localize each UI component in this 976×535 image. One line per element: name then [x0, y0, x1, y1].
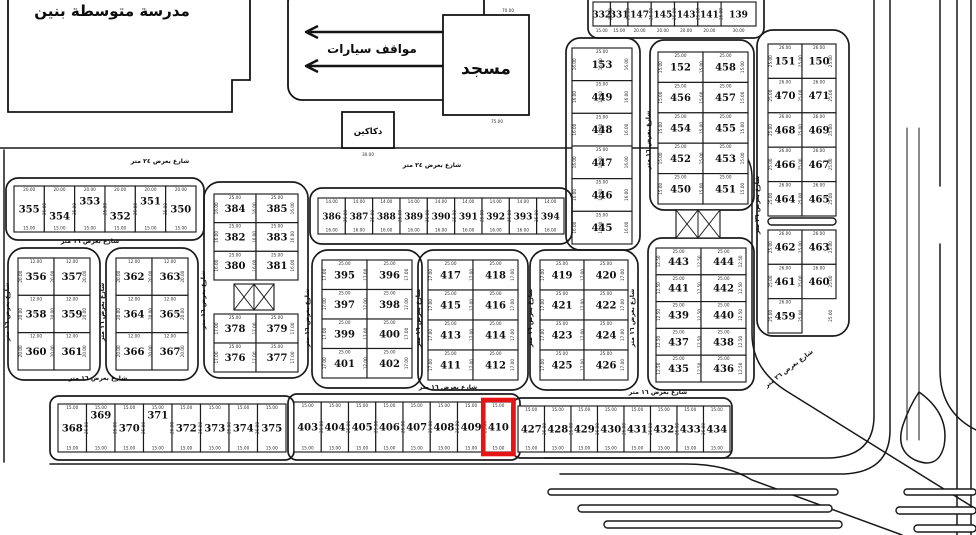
- plot-number-442: 442: [713, 284, 734, 295]
- plot-number-390: 390: [432, 213, 451, 223]
- dim-label: 15.00: [492, 446, 504, 451]
- dim-label: 25.00: [596, 180, 608, 185]
- dim-label: 26.00: [813, 265, 825, 270]
- dim-label: 15.00: [438, 403, 450, 408]
- dim-label: 25.00: [798, 89, 803, 101]
- dim-label: 20.00: [50, 308, 55, 320]
- dim-label: 12.50: [697, 309, 702, 321]
- shops-label: دكاكين: [354, 127, 383, 137]
- plot-number-439: 439: [668, 311, 689, 322]
- plot-number-444: 444: [713, 257, 734, 268]
- dim-label: 25.00: [701, 423, 706, 435]
- dim-label: 16.00: [408, 228, 420, 233]
- dim-label: 16.00: [572, 156, 577, 168]
- landmark-mosque: مسجد 70.00 75.00: [443, 8, 529, 124]
- school-label: مدرسة متوسطة بنين: [34, 2, 190, 20]
- dim-label: 17.00: [428, 269, 433, 281]
- plot-number-420: 420: [596, 271, 617, 282]
- dim-label: 16.00: [252, 231, 257, 243]
- dim-label: 25.00: [720, 83, 732, 88]
- street-label: شارع بعرض ٢٦ متر: [754, 176, 761, 235]
- dim-label: 15.00: [123, 446, 135, 451]
- dim-label: 25.00: [113, 422, 118, 434]
- plot-number-415: 415: [440, 301, 461, 312]
- street-label: شارع بعرض ١٦ متر: [418, 384, 477, 391]
- dim-label: 16.00: [517, 228, 529, 233]
- dim-label: 25.00: [720, 53, 732, 58]
- dim-label: 25.00: [170, 422, 175, 434]
- dim-label: 20.00: [54, 187, 66, 192]
- dim-label: 25.00: [455, 421, 460, 433]
- plot-number-383: 383: [267, 233, 288, 244]
- dim-label: 20.00: [82, 308, 87, 320]
- plot-number-143: 143: [677, 11, 696, 21]
- dim-label: 20.00: [657, 28, 669, 33]
- dim-label: 25.00: [828, 158, 833, 170]
- dim-label: 25.00: [229, 315, 241, 320]
- dim-label: 25.00: [798, 310, 803, 322]
- dim-label: 25.00: [445, 291, 457, 296]
- plot-number-452: 452: [670, 154, 691, 165]
- dim-label: 17.00: [252, 322, 257, 334]
- dim-label: 12.00: [164, 296, 176, 301]
- dim-label: 16.00: [290, 202, 295, 214]
- dim-label: 17.00: [510, 329, 515, 341]
- plot-number-389: 389: [404, 213, 423, 223]
- dim-label: 25.00: [600, 321, 612, 326]
- dim-label: 25.00: [452, 210, 457, 222]
- dim-label: 15.00: [658, 152, 663, 164]
- dim-label: 25.00: [343, 210, 348, 222]
- plot-number-461: 461: [775, 277, 796, 288]
- plot-number-369: 369: [90, 411, 111, 422]
- dim-label: 26.00: [779, 183, 791, 188]
- dim-label: 16.00: [598, 123, 603, 135]
- lane-bar-3: [604, 521, 842, 528]
- street-label: شارع بعرض ١٦ متر: [628, 389, 687, 396]
- plot-number-357: 357: [62, 272, 83, 283]
- plot-number-358: 358: [26, 310, 47, 321]
- dim-label: 12.00: [128, 259, 140, 264]
- street-label: شارع بعرض ١٦ متر: [645, 111, 652, 170]
- dim-label: 17.00: [404, 327, 409, 339]
- dim-label: 15.00: [356, 446, 368, 451]
- dim-label: 25.00: [445, 261, 457, 266]
- plot-number-466: 466: [775, 160, 796, 171]
- dim-label: 25.00: [163, 203, 168, 215]
- plot-number-399: 399: [334, 329, 355, 340]
- plot-number-456: 456: [670, 93, 691, 104]
- dim-label: 15.00: [578, 407, 590, 412]
- dim-label: 15.00: [525, 407, 537, 412]
- plot-number-395: 395: [334, 270, 355, 281]
- dim-label: 17.00: [214, 322, 219, 334]
- dim-label: 25.00: [719, 8, 724, 20]
- lane-bar-4: [904, 489, 976, 495]
- lane-bar-6: [914, 525, 976, 532]
- plot-number-394: 394: [541, 213, 560, 223]
- dim-label: 15.00: [658, 91, 663, 103]
- dim-label: 15.00: [699, 152, 704, 164]
- dim-label: 12.00: [128, 334, 140, 339]
- dim-label: 17.00: [540, 299, 545, 311]
- dim-label: 26.00: [779, 114, 791, 119]
- plot-number-424: 424: [596, 331, 617, 342]
- dim-label: 25.00: [271, 344, 283, 349]
- plot-number-459: 459: [775, 311, 796, 322]
- dim-label: 17.00: [404, 357, 409, 369]
- dim-label: 25.00: [72, 203, 77, 215]
- dim-label: 26.00: [813, 79, 825, 84]
- street-label: شارع بعرض ٢٤ متر: [402, 162, 461, 169]
- dim-label: 15.00: [740, 61, 745, 73]
- plot-number-378: 378: [225, 324, 246, 335]
- dim-label: 15.00: [658, 446, 670, 451]
- dim-label: 15.00: [552, 407, 564, 412]
- dim-label: 17.00: [322, 327, 327, 339]
- dim-label: 25.00: [828, 241, 833, 253]
- dim-label: 25.00: [675, 53, 687, 58]
- dim-label: 17.00: [540, 359, 545, 371]
- dim-label: 26.00: [813, 183, 825, 188]
- plot-number-373: 373: [204, 424, 225, 435]
- landmark-school: مدرسة متوسطة بنين: [8, 0, 250, 112]
- plot-number-426: 426: [596, 361, 617, 372]
- dim-label: 25.00: [718, 249, 730, 254]
- dim-label: 16.00: [353, 228, 365, 233]
- dim-label: 25.00: [229, 252, 241, 257]
- plot-number-364: 364: [124, 310, 145, 321]
- plot-number-416: 416: [485, 301, 506, 312]
- dim-label: 25.00: [271, 252, 283, 257]
- dim-label: 15.00: [383, 446, 395, 451]
- dim-label: 25.00: [768, 310, 773, 322]
- dim-label: 25.00: [370, 210, 375, 222]
- dim-label: 25.00: [227, 422, 232, 434]
- dim-label: 17.00: [580, 329, 585, 341]
- dim-label: 16.00: [572, 58, 577, 70]
- street-label: شارع بعرض ٢٦ متر: [763, 348, 815, 389]
- dim-label: 25.00: [384, 261, 396, 266]
- dim-label: 25.00: [596, 147, 608, 152]
- dim-label: 17.00: [428, 329, 433, 341]
- plot-number-437: 437: [668, 337, 689, 348]
- dim-label: 25.00: [625, 8, 630, 20]
- dim-label: 15.00: [492, 403, 504, 408]
- dim-label: 25.00: [133, 203, 138, 215]
- dim-label: 12.50: [656, 362, 661, 374]
- dim-label: 15.00: [329, 446, 341, 451]
- dim-label: 15.00: [699, 61, 704, 73]
- dim-label: 15.00: [578, 446, 590, 451]
- dim-label: 16.00: [380, 228, 392, 233]
- plot-number-139: 139: [729, 11, 748, 21]
- dim-label: 15.00: [740, 182, 745, 194]
- plot-number-380: 380: [225, 261, 246, 272]
- dim-label: 25.00: [569, 423, 574, 435]
- dim-label: 25.00: [480, 210, 485, 222]
- dim-label: 17.00: [290, 322, 295, 334]
- dim-label: 16.00: [290, 259, 295, 271]
- plot-number-368: 368: [62, 424, 83, 435]
- dim-label: 15.00: [302, 403, 314, 408]
- plot-number-397: 397: [334, 300, 355, 311]
- dim-label: 14.00: [353, 199, 365, 204]
- street-label: شارع بعرض ١٦ متر: [200, 271, 207, 330]
- plot-number-362: 362: [124, 272, 145, 283]
- dim-label: 15.00: [356, 403, 368, 408]
- dim-label: 16.00: [252, 259, 257, 271]
- dim-label: 20.00: [23, 187, 35, 192]
- dim-label: 16.00: [624, 91, 629, 103]
- dim-label: 26.00: [779, 265, 791, 270]
- plot-number-436: 436: [713, 364, 734, 375]
- dim-label: 15.00: [180, 405, 192, 410]
- lane-bar-2: [578, 505, 832, 512]
- dim-label: 12.00: [66, 334, 78, 339]
- plot-number-457: 457: [715, 93, 736, 104]
- dim-label: 25.00: [675, 144, 687, 149]
- dim-label: 25.00: [103, 203, 108, 215]
- plot-number-376: 376: [225, 353, 246, 364]
- street-label: شارع بعرض ١٦ متر: [527, 289, 534, 348]
- dim-label: 16.00: [624, 123, 629, 135]
- plot-number-388: 388: [377, 213, 396, 223]
- plot-number-417: 417: [440, 271, 461, 282]
- dim-label: 17.00: [620, 329, 625, 341]
- dim-label: 15.00: [658, 122, 663, 134]
- plot-number-359: 359: [62, 310, 83, 321]
- dim-label: 15.00: [180, 446, 192, 451]
- dim-label: 16.00: [624, 156, 629, 168]
- dim-label: 25.00: [595, 423, 600, 435]
- plot-number-410: 410: [488, 423, 509, 434]
- dim-label: 25.00: [339, 350, 351, 355]
- plot-number-361: 361: [62, 347, 83, 358]
- plot-number-366: 366: [124, 347, 145, 358]
- mosque-dim-bottom: 75.00: [491, 119, 503, 124]
- dim-label: 20.00: [50, 345, 55, 357]
- dim-label: 15.00: [699, 122, 704, 134]
- plot-number-406: 406: [379, 423, 400, 434]
- street-label: شارع بعرض ١٦ متر: [415, 289, 422, 348]
- dim-label: 25.00: [720, 144, 732, 149]
- dim-label: 25.00: [339, 261, 351, 266]
- dim-label: 16.00: [544, 228, 556, 233]
- plot-number-405: 405: [352, 423, 373, 434]
- dim-label: 25.00: [556, 351, 568, 356]
- dim-label: 25.00: [673, 249, 685, 254]
- plot-number-470: 470: [775, 91, 796, 102]
- dim-label: 25.00: [507, 210, 512, 222]
- dim-label: 17.00: [428, 359, 433, 371]
- dim-label: 25.00: [42, 203, 47, 215]
- dim-label: 25.00: [271, 224, 283, 229]
- dim-label: 17.00: [363, 298, 368, 310]
- plot-number-350: 350: [170, 205, 191, 216]
- plot-number-414: 414: [485, 331, 506, 342]
- dim-label: 25.00: [768, 89, 773, 101]
- dim-label: 17.00: [404, 268, 409, 280]
- dim-label: 12.50: [697, 255, 702, 267]
- plot-number-363: 363: [160, 272, 181, 283]
- plot-number-465: 465: [809, 194, 830, 205]
- plot-number-433: 433: [680, 425, 701, 436]
- plot-number-381: 381: [267, 261, 288, 272]
- dim-label: 25.00: [673, 329, 685, 334]
- dim-label: 15.00: [631, 407, 643, 412]
- dim-label: 17.00: [510, 269, 515, 281]
- plot-number-469: 469: [809, 126, 830, 137]
- plot-number-147: 147: [630, 11, 649, 21]
- plot-number-451: 451: [715, 184, 736, 195]
- dim-label: 16.00: [598, 221, 603, 233]
- dim-label: 17.00: [510, 299, 515, 311]
- dim-label: 17.00: [540, 269, 545, 281]
- plot-number-371: 371: [147, 411, 168, 422]
- subdivision-map: مدرسة متوسطة بنين مواقف سيارات مسجد 70.0…: [0, 0, 976, 535]
- plot-number-429: 429: [574, 425, 595, 436]
- dim-label: 25.00: [596, 82, 608, 87]
- plot-number-150: 150: [809, 57, 830, 68]
- dim-label: 15.00: [740, 122, 745, 134]
- plot-number-423: 423: [552, 331, 573, 342]
- dim-label: 25.00: [768, 158, 773, 170]
- dim-label: 16.00: [214, 259, 219, 271]
- dim-label: 15.00: [209, 405, 221, 410]
- dim-label: 15.00: [66, 446, 78, 451]
- dim-label: 25.00: [768, 55, 773, 67]
- dim-label: 15.00: [684, 446, 696, 451]
- dim-label: 25.00: [401, 421, 406, 433]
- dim-label: 15.00: [658, 407, 670, 412]
- plot-number-460: 460: [809, 277, 830, 288]
- plot-number-401: 401: [334, 359, 355, 370]
- dim-label: 12.00: [30, 334, 42, 339]
- dim-label: 15.00: [66, 405, 78, 410]
- dim-label: 12.50: [738, 335, 743, 347]
- dim-label: 15.00: [465, 446, 477, 451]
- dim-label: 25.00: [608, 8, 613, 20]
- dim-label: 12.50: [738, 255, 743, 267]
- dim-label: 25.00: [798, 55, 803, 67]
- dim-label: 25.00: [198, 422, 203, 434]
- dim-label: 25.00: [828, 124, 833, 136]
- dim-label: 25.00: [596, 212, 608, 217]
- dim-label: 25.00: [271, 315, 283, 320]
- shops-dim-bottom: 30.00: [362, 152, 374, 157]
- dim-label: 20.00: [180, 308, 185, 320]
- dim-label: 12.50: [738, 282, 743, 294]
- dim-label: 15.00: [525, 446, 537, 451]
- dim-label: 14.00: [490, 199, 502, 204]
- plot-number-431: 431: [627, 425, 648, 436]
- dim-label: 17.00: [580, 269, 585, 281]
- plot-number-438: 438: [713, 337, 734, 348]
- dim-label: 25.00: [600, 291, 612, 296]
- dim-label: 15.00: [383, 403, 395, 408]
- dim-label: 12.00: [164, 259, 176, 264]
- plot-number-428: 428: [547, 425, 568, 436]
- dim-label: 25.00: [596, 114, 608, 119]
- dim-label: 25.00: [828, 310, 833, 322]
- dim-label: 12.00: [66, 259, 78, 264]
- plot-number-392: 392: [486, 213, 505, 223]
- street-label: شارع بعرض ١٦ متر: [99, 283, 106, 342]
- dim-label: 20.00: [116, 345, 121, 357]
- plot-number-441: 441: [668, 284, 689, 295]
- dim-label: 26.00: [779, 148, 791, 153]
- plot-number-412: 412: [485, 361, 506, 372]
- street-label: شارع بعرض ١٦ متر: [4, 283, 11, 342]
- plot-number-141: 141: [700, 11, 719, 21]
- plot-number-385: 385: [267, 204, 288, 215]
- plot-number-418: 418: [485, 271, 506, 282]
- plot-number-411: 411: [440, 361, 461, 372]
- dim-label: 25.00: [718, 329, 730, 334]
- dim-label: 16.00: [252, 202, 257, 214]
- dim-label: 15.00: [711, 407, 723, 412]
- dim-label: 15.00: [95, 405, 107, 410]
- dim-label: 12.50: [697, 282, 702, 294]
- dim-label: 26.00: [779, 79, 791, 84]
- plot-number-398: 398: [379, 300, 400, 311]
- dim-label: 15.00: [465, 403, 477, 408]
- dim-label: 15.00: [411, 446, 423, 451]
- dim-label: 15.00: [699, 182, 704, 194]
- plot-number-396: 396: [379, 270, 400, 281]
- dim-label: 25.00: [384, 320, 396, 325]
- plot-number-370: 370: [119, 424, 140, 435]
- plot-number-413: 413: [440, 331, 461, 342]
- plot-number-464: 464: [775, 194, 796, 205]
- street-label: شارع بعرض ١٦ متر: [629, 289, 636, 348]
- dim-label: 15.00: [145, 226, 157, 231]
- dim-label: 25.00: [398, 210, 403, 222]
- dim-label: 20.00: [180, 345, 185, 357]
- dim-label: 20.00: [175, 187, 187, 192]
- plot-number-432: 432: [653, 425, 674, 436]
- plot-number-421: 421: [552, 301, 573, 312]
- dim-label: 20.00: [116, 270, 121, 282]
- dim-label: 25.00: [425, 210, 430, 222]
- plot-number-400: 400: [379, 329, 400, 340]
- dim-label: 14.00: [462, 199, 474, 204]
- dim-label: 25.00: [622, 423, 627, 435]
- plot-number-355: 355: [19, 205, 40, 216]
- plot-number-354: 354: [49, 212, 70, 223]
- plot-number-404: 404: [324, 423, 345, 434]
- plot-number-386: 386: [322, 213, 341, 223]
- dim-label: 25.00: [768, 275, 773, 287]
- plot-number-352: 352: [110, 212, 131, 223]
- dim-label: 25.00: [798, 124, 803, 136]
- dim-label: 15.00: [152, 405, 164, 410]
- plot-number-152: 152: [670, 63, 691, 74]
- dim-label: 15.00: [237, 446, 249, 451]
- plot-number-403: 403: [297, 423, 318, 434]
- plot-number-440: 440: [713, 311, 734, 322]
- dim-label: 25.00: [828, 192, 833, 204]
- dim-label: 25.00: [720, 114, 732, 119]
- dim-label: 12.50: [656, 282, 661, 294]
- dim-label: 25.00: [828, 55, 833, 67]
- dim-label: 20.00: [180, 270, 185, 282]
- dim-label: 14.00: [380, 199, 392, 204]
- plot-number-365: 365: [160, 310, 181, 321]
- dim-label: 20.00: [18, 345, 23, 357]
- dim-label: 20.00: [18, 270, 23, 282]
